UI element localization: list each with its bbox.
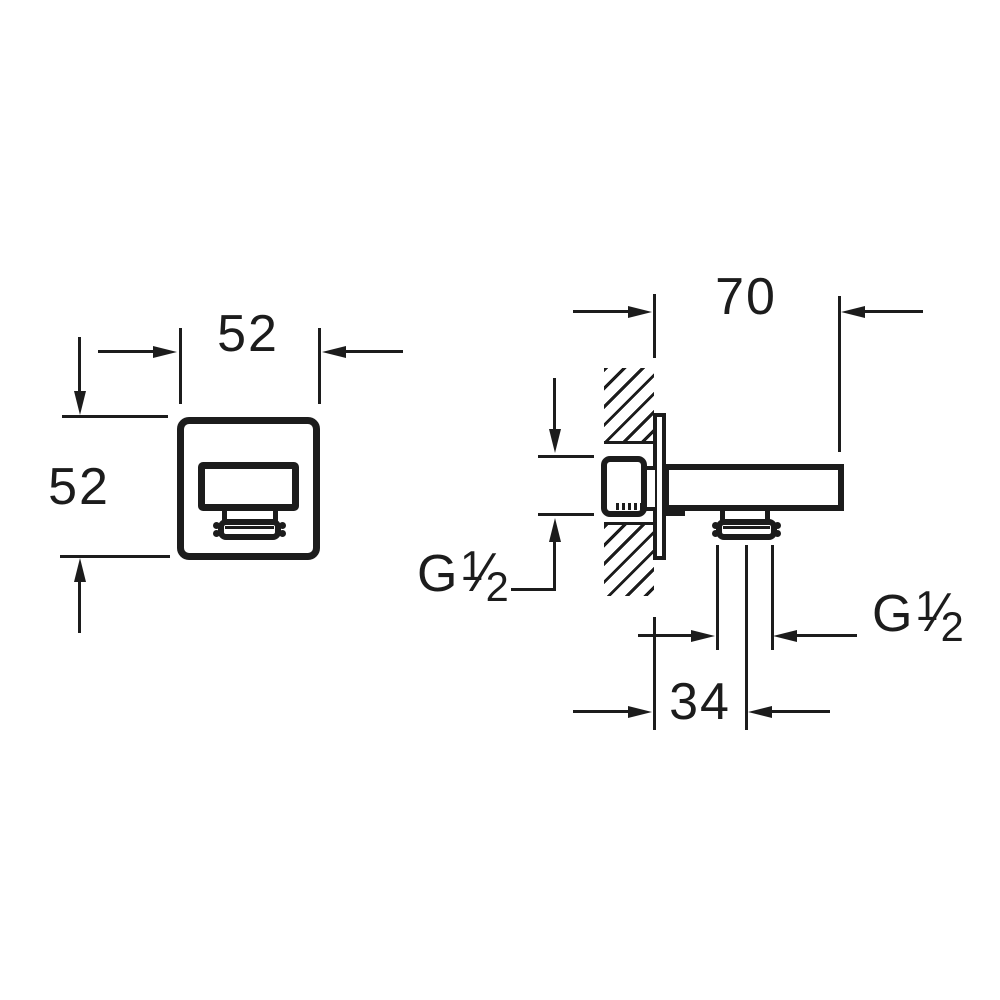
extension-line-wall-face [653,617,656,730]
dimension-arrow-right [628,706,652,718]
technical-drawing-canvas: 52 52 [0,0,1000,1000]
side-view: 70 G1⁄2 G1⁄2 [0,0,1000,1000]
dim-label-outlet-offset: 34 [663,676,737,728]
dimension-line [573,710,628,713]
dim-outlet-offset: 34 [0,0,1000,1000]
outlet-centerline [745,545,748,730]
dimension-line [772,710,830,713]
dimension-arrow-left [748,706,772,718]
